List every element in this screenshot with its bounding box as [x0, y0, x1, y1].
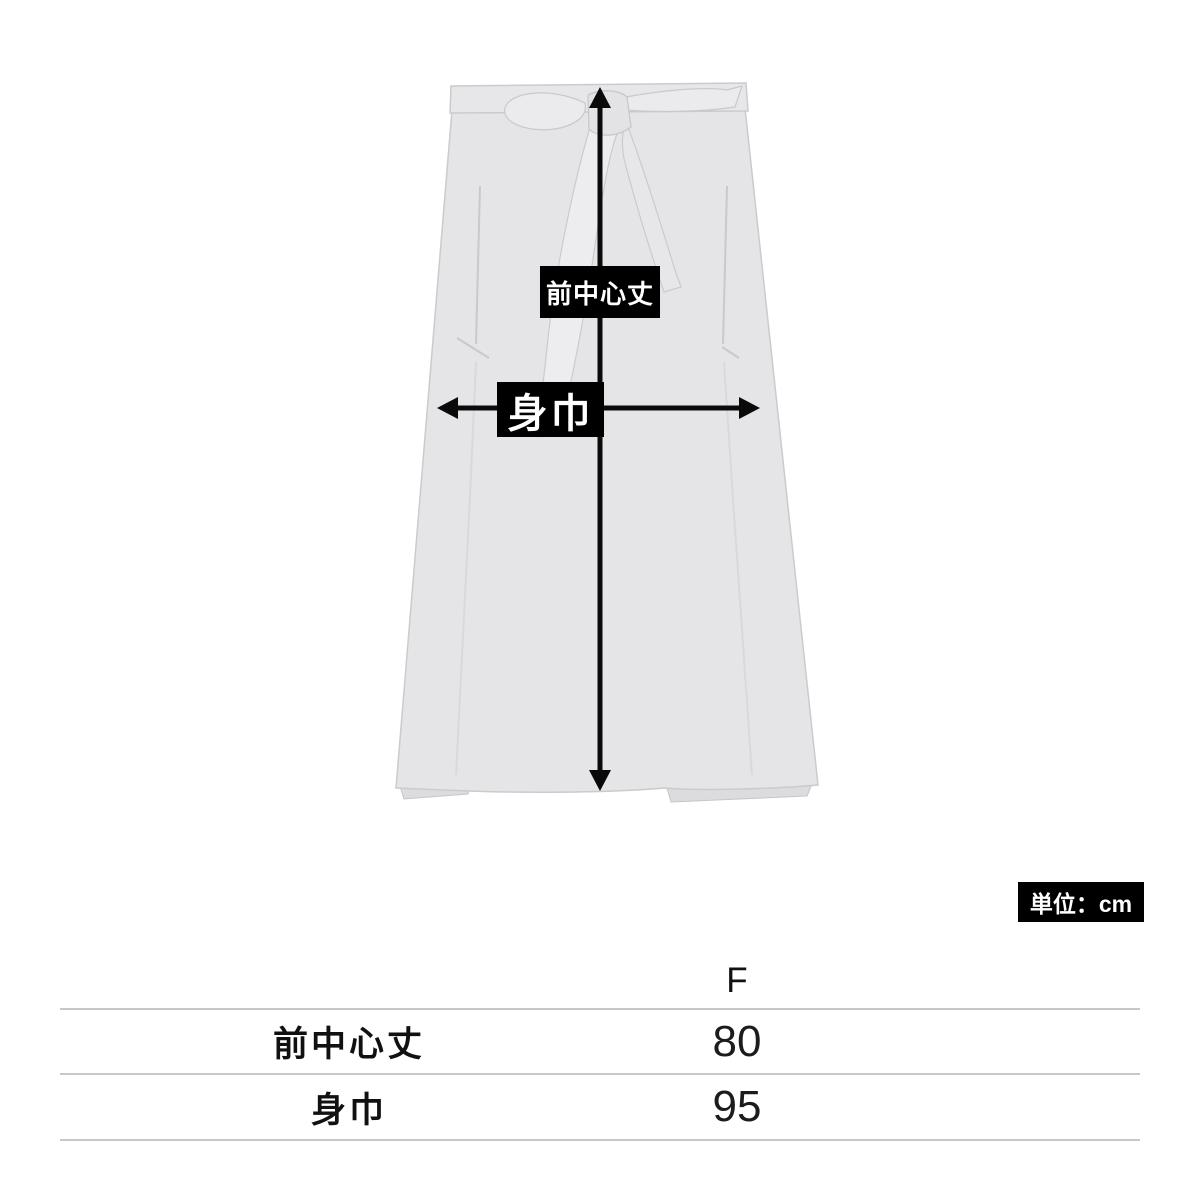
size-column-header: F	[638, 961, 836, 1001]
measurement-label: 身巾	[60, 1082, 638, 1133]
table-row-body-width: 身巾 95	[60, 1073, 1140, 1141]
body-width-label: 身巾	[497, 382, 604, 437]
vertical-arrow-shaft	[598, 104, 603, 774]
measurement-value: 95	[638, 1082, 836, 1132]
size-table-header-row: F	[60, 948, 1140, 1008]
apron-body	[396, 83, 818, 792]
table-row-front-center-length: 前中心丈 80	[60, 1008, 1140, 1073]
unit-badge-text: 単位：cm	[1030, 885, 1132, 919]
size-table: F 前中心丈 80 身巾 95	[60, 948, 1140, 1141]
body-width-label-text: 身巾	[508, 381, 594, 439]
apron-size-chart: 前中心丈 身巾 単位：cm F 前中心丈 80 身巾 95	[0, 0, 1200, 1200]
measurement-value: 80	[638, 1017, 836, 1067]
unit-badge: 単位：cm	[1018, 882, 1144, 922]
measurement-label: 前中心丈	[60, 1016, 638, 1067]
front-center-length-label: 前中心丈	[540, 266, 660, 318]
front-center-length-label-text: 前中心丈	[546, 274, 654, 311]
bow-knot	[588, 91, 631, 135]
